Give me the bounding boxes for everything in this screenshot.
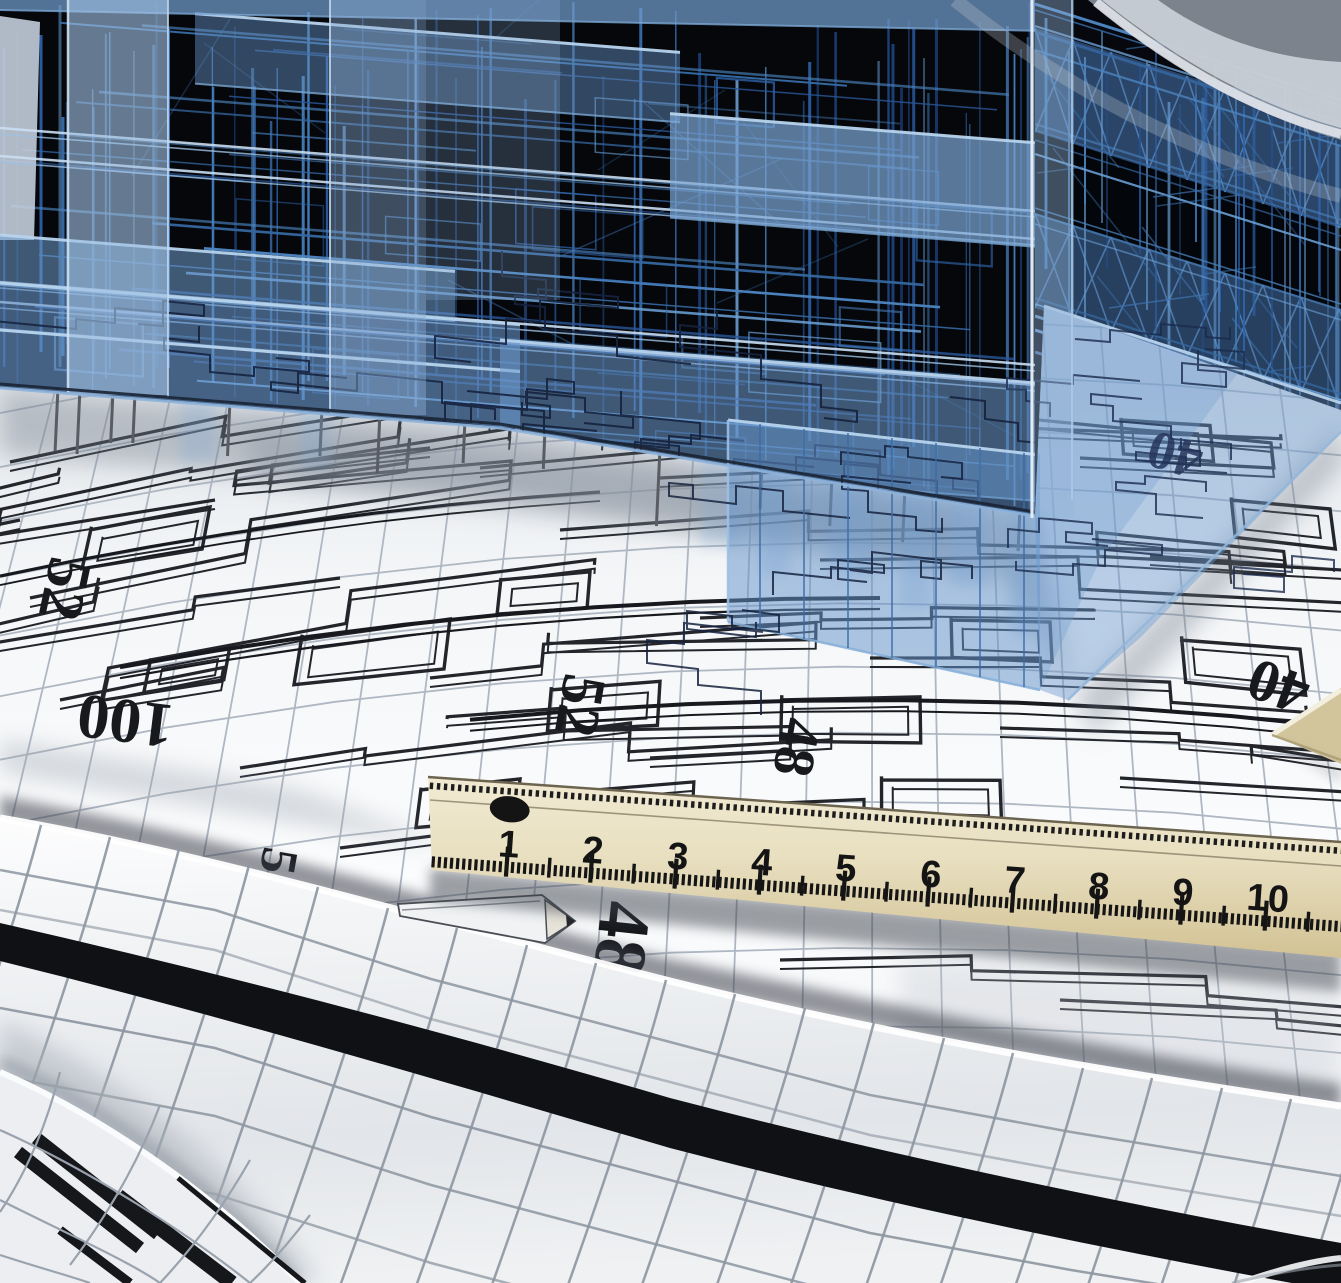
svg-text:7: 7 xyxy=(1003,859,1027,902)
svg-text:2: 2 xyxy=(581,829,605,872)
svg-text:8: 8 xyxy=(1087,865,1111,908)
svg-text:4: 4 xyxy=(750,841,774,884)
svg-text:5: 5 xyxy=(834,847,858,890)
svg-text:1: 1 xyxy=(497,823,521,866)
svg-text:3: 3 xyxy=(666,835,690,878)
svg-text:100: 100 xyxy=(73,680,177,762)
svg-text:10: 10 xyxy=(1245,877,1290,922)
svg-text:9: 9 xyxy=(1171,871,1195,914)
svg-text:52: 52 xyxy=(541,669,619,742)
svg-text:6: 6 xyxy=(919,853,943,896)
svg-text:48: 48 xyxy=(760,713,834,781)
